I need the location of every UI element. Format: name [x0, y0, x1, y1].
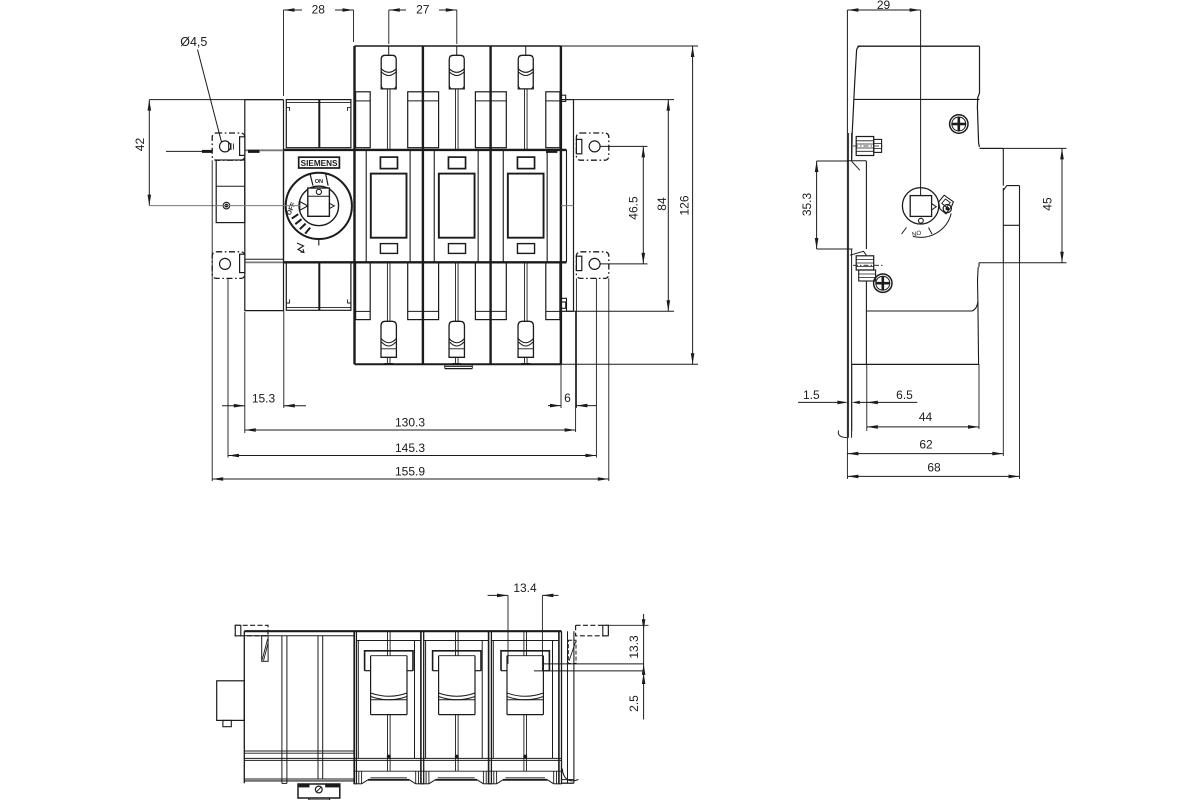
svg-text:6: 6	[564, 391, 571, 405]
svg-text:42: 42	[133, 138, 147, 152]
svg-text:62: 62	[919, 438, 933, 452]
svg-text:29: 29	[877, 0, 891, 12]
svg-text:27: 27	[416, 2, 430, 16]
svg-text:2.5: 2.5	[627, 695, 641, 712]
svg-text:SIEMENS: SIEMENS	[301, 159, 338, 168]
svg-text:84: 84	[655, 197, 669, 211]
svg-text:46.5: 46.5	[626, 196, 640, 220]
svg-text:35.3: 35.3	[800, 192, 814, 216]
svg-text:155.9: 155.9	[395, 465, 425, 479]
svg-text:44: 44	[919, 410, 933, 424]
svg-text:68: 68	[927, 460, 941, 474]
svg-text:13.4: 13.4	[513, 581, 537, 595]
svg-text:1.5: 1.5	[803, 388, 820, 402]
svg-text:45: 45	[1040, 197, 1054, 211]
svg-text:15.3: 15.3	[252, 391, 276, 405]
svg-text:Ø4,5: Ø4,5	[180, 35, 207, 49]
svg-text:6.5: 6.5	[896, 388, 913, 402]
svg-text:145.3: 145.3	[395, 441, 425, 455]
svg-text:ON: ON	[315, 179, 323, 185]
svg-text:130.3: 130.3	[395, 416, 425, 430]
svg-text:126: 126	[678, 195, 692, 215]
svg-text:28: 28	[312, 2, 326, 16]
svg-text:13.3: 13.3	[627, 635, 641, 659]
